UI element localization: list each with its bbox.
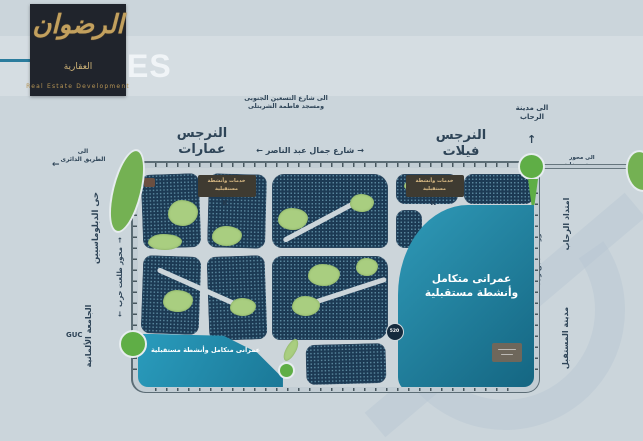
screen: ES الرضوان العقارية Real Estate Developm…	[0, 0, 643, 441]
partial-section-title: ES	[127, 48, 172, 85]
tiny-text-line	[498, 349, 516, 351]
services-banner: خدمات وأنشطة مستقبلية	[406, 175, 464, 197]
bottom-zone-label: عمرانى متكامل وأنشطة مستقبلية	[144, 346, 268, 354]
label-line: خدمات وأنشطة	[406, 178, 464, 186]
arrow-left-icon: ←	[52, 160, 60, 171]
park	[356, 258, 378, 276]
east-road	[543, 164, 635, 169]
label-line: الى شارع التسعين الجنوبى	[244, 95, 328, 102]
park	[212, 226, 242, 246]
park	[230, 298, 256, 316]
logo-calligraphy-icon: الرضوان	[30, 10, 126, 40]
label-line: خدمات وأنشطة	[198, 178, 256, 186]
label-narges-villas: النرجس فيلات	[424, 128, 498, 161]
label-line: الرحاب	[520, 113, 544, 121]
label-line: الطريق الدائرى	[61, 156, 106, 163]
label-line: الى	[78, 148, 88, 155]
label-line: الجامعة الألمانية	[84, 305, 94, 368]
label-mostakbal-city: مدينة المستقبل	[560, 296, 572, 380]
rehab-roundabout	[518, 153, 545, 180]
label-line: مستقبلية	[198, 186, 256, 194]
road-ticks	[535, 185, 539, 370]
label-line: الى مدينة	[516, 104, 549, 112]
label-gamal-abdel-nasser-street: ← شارع جمال عبد الناصر →	[250, 146, 370, 156]
label-to-ring-road: الى الطريق الدائرى	[60, 148, 106, 163]
label-line: الى محور	[569, 155, 594, 161]
services-banner: خدمات وأنشطة مستقبلية	[198, 175, 256, 197]
arrow-up-icon: ↑	[527, 133, 536, 147]
arrow-left-icon: ←	[256, 146, 263, 156]
k-marker: K	[431, 199, 436, 207]
road-ticks	[155, 163, 517, 167]
green-median	[280, 337, 300, 363]
logo-brand-word: العقارية	[30, 62, 126, 72]
park	[148, 234, 182, 250]
label-line: حى الدبلوماسيين	[91, 192, 102, 264]
arrow-right-icon: →	[357, 146, 364, 156]
perimeter-road: عمرانى متكامل وأنشطة مستقبلية عمرانى متك…	[133, 163, 539, 392]
label-german-university: الجامعة الألمانية	[83, 294, 95, 378]
label-to-south-90th: الى شارع التسعين الجنوبى ومسجد فاطمة الش…	[238, 95, 334, 111]
label-line: محور طلعت حرب	[116, 247, 125, 307]
park	[278, 208, 308, 230]
location-pin: 520	[386, 323, 404, 341]
label-to-rehab-city: الى مدينة الرحاب	[506, 104, 558, 122]
label-line: مدينة المستقبل	[561, 307, 571, 369]
masterplan-map: عمرانى متكامل وأنشطة مستقبلية عمرانى متك…	[131, 161, 540, 393]
housing-cluster	[464, 174, 534, 204]
label-line: شارع جمال عبد الناصر	[266, 146, 354, 156]
roundabout	[278, 362, 295, 379]
bottom-zone	[138, 334, 288, 387]
park	[292, 296, 320, 316]
housing-cluster	[305, 342, 386, 384]
park	[163, 290, 193, 312]
label-diplomats-district: حى الدبلوماسيين	[90, 183, 102, 273]
park	[350, 194, 374, 212]
road-ticks	[155, 388, 517, 392]
map-interior: عمرانى متكامل وأنشطة مستقبلية عمرانى متك…	[138, 168, 534, 387]
label-line: وأنشطة مستقبلية	[425, 287, 518, 299]
accent-line	[0, 59, 34, 62]
arrow-left-icon: ←	[116, 311, 125, 317]
southwest-roundabout	[119, 330, 147, 358]
label-rehab-extension: امتداد الرحاب	[561, 182, 573, 266]
label-line: عمرانى متكامل	[432, 273, 511, 285]
logo-tagline: Real Estate Development	[26, 83, 130, 90]
label-talaat-harb-axis: ← محور طلعت حرب →	[114, 233, 126, 321]
tiny-text-line	[501, 354, 513, 356]
label-line: مستقبلية	[406, 186, 464, 194]
company-logo: الرضوان العقارية Real Estate Development	[30, 4, 126, 96]
utility-box	[492, 343, 522, 362]
utility-box	[144, 178, 155, 187]
label-line: امتداد الرحاب	[562, 198, 572, 251]
label-line: ومسجد فاطمة الشربتلى	[248, 103, 324, 110]
lake-zone-label: عمرانى متكامل وأنشطة مستقبلية	[416, 272, 528, 300]
park	[168, 200, 198, 226]
label-guc: GUC	[66, 331, 83, 340]
k-marker: K	[223, 199, 228, 207]
arrow-right-icon: →	[116, 237, 125, 243]
label-narges-apartments: النرجس عمارات	[158, 126, 246, 159]
park	[308, 264, 340, 286]
